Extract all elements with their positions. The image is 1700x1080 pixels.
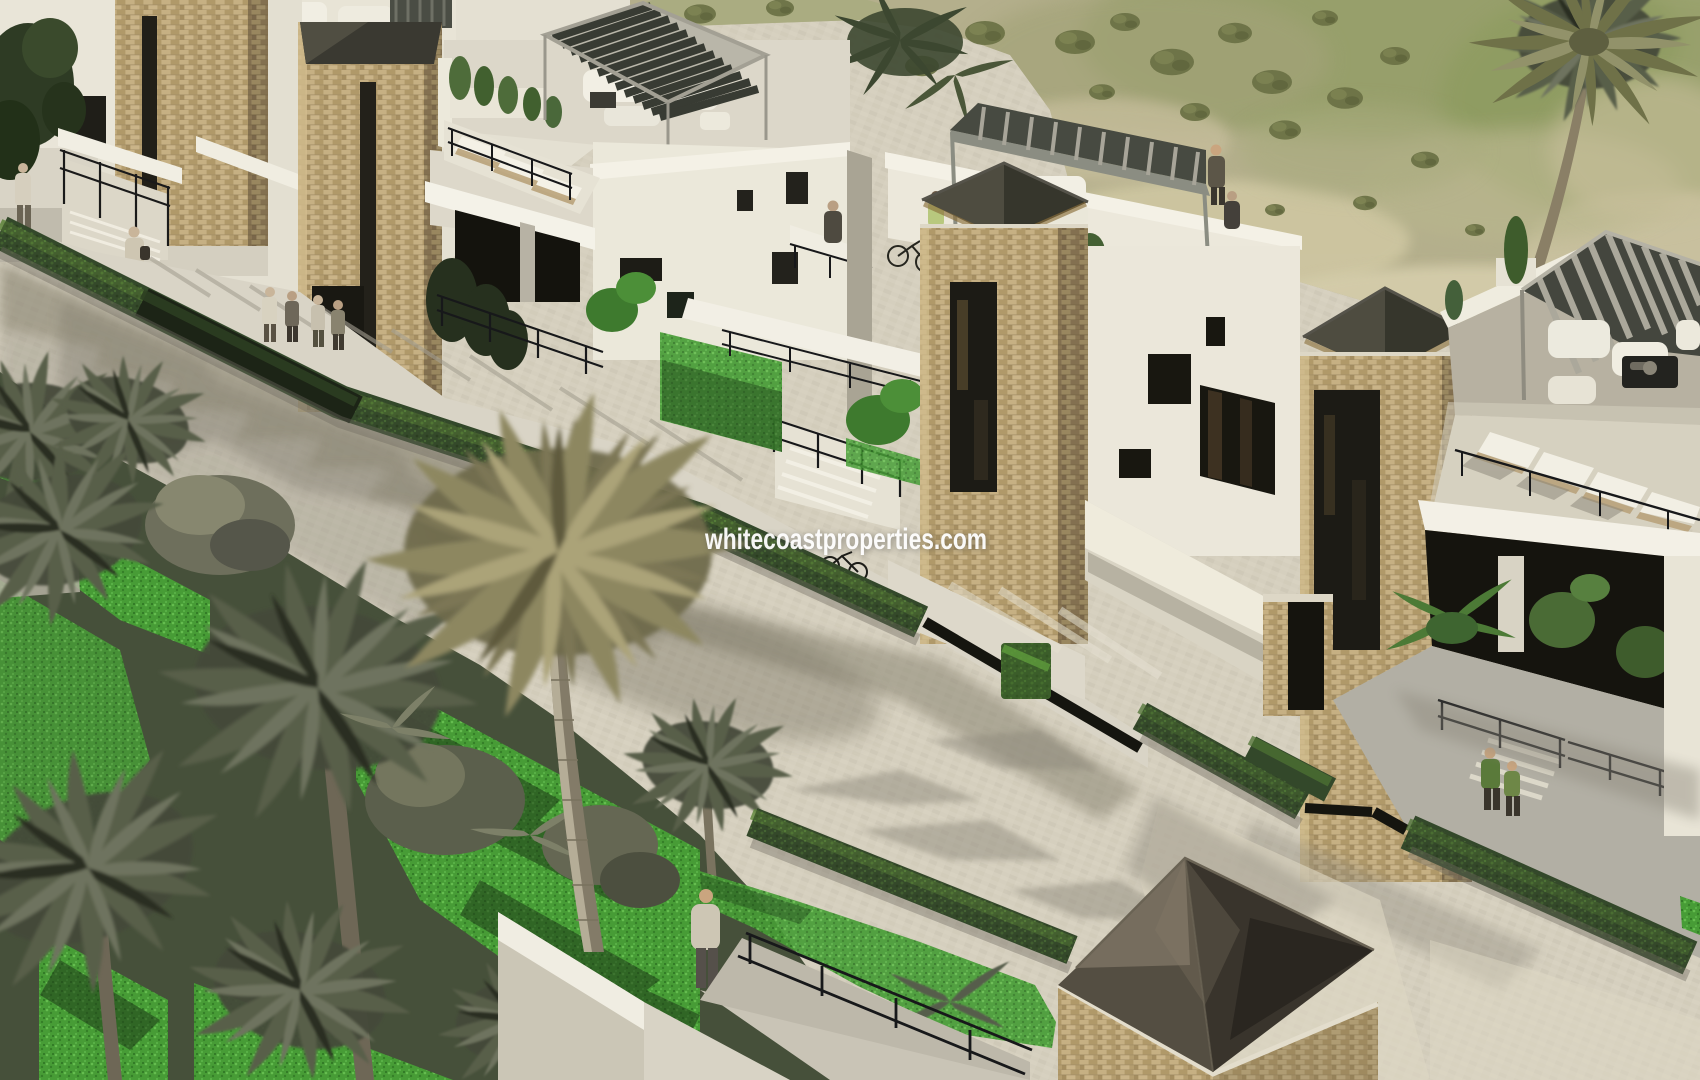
svg-text:whitecoastproperties.com: whitecoastproperties.com (704, 523, 987, 556)
